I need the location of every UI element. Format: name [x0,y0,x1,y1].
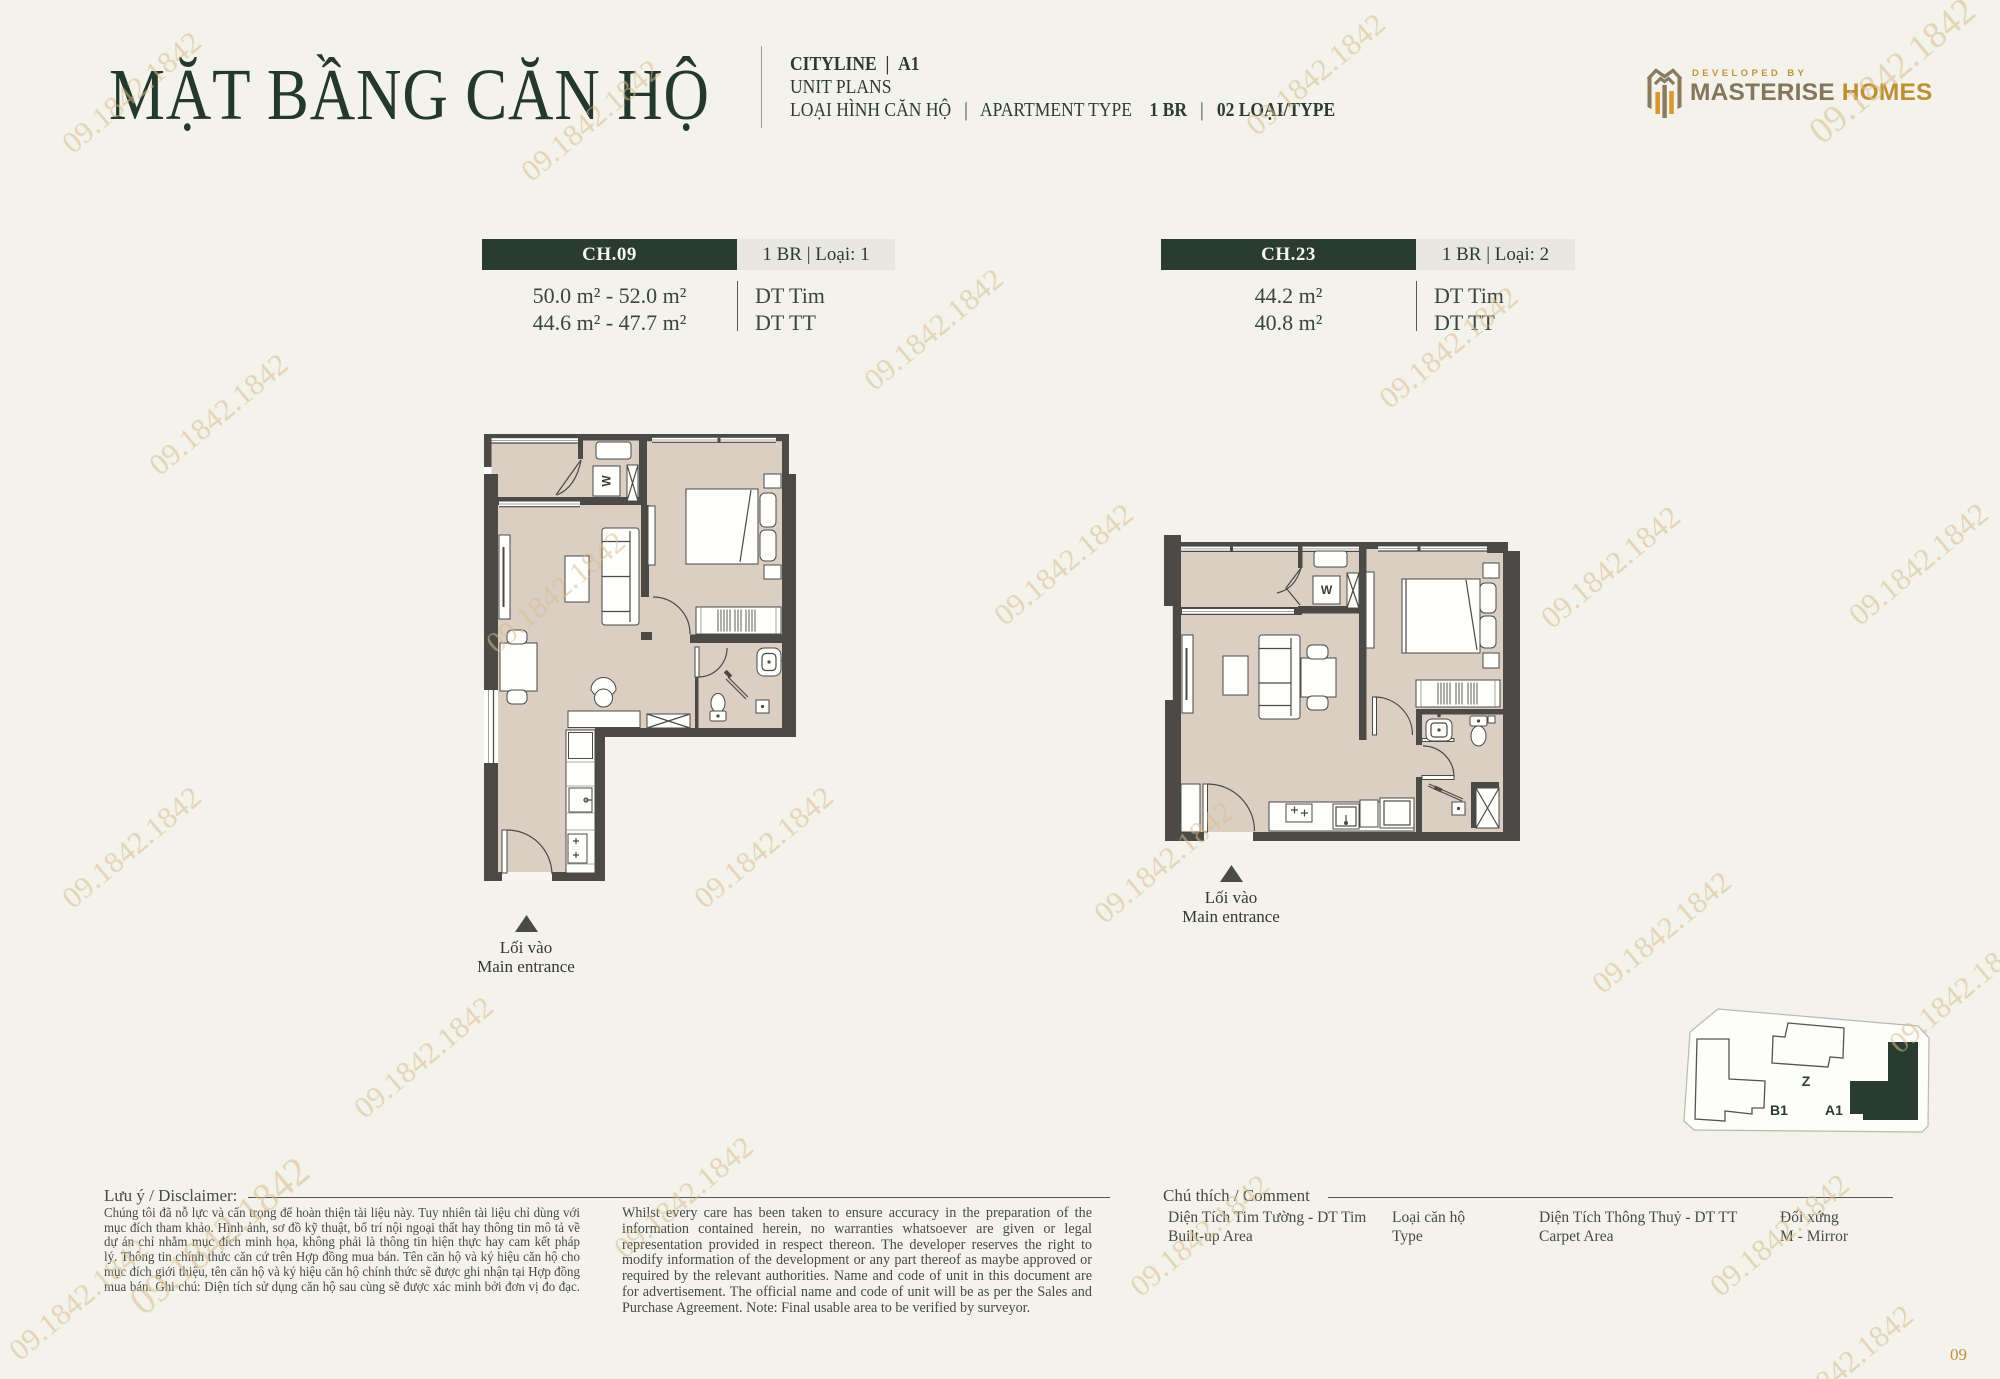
svg-text:09.1842.1842: 09.1842.1842 [1123,1167,1276,1303]
svg-text:09.1842.1842: 09.1842.1842 [1087,794,1240,930]
svg-text:09.1842.1842: 09.1842.1842 [1239,6,1392,142]
svg-text:09.1842.1842: 09.1842.1842 [857,261,1010,397]
svg-text:09.1842.1842: 09.1842.1842 [1703,1167,1856,1303]
svg-text:09.1842.1842: 09.1842.1842 [1882,924,2000,1060]
svg-text:09.1842.1842: 09.1842.1842 [142,346,295,482]
svg-text:09.1842.1842: 09.1842.1842 [55,779,208,915]
svg-text:09.1842.1842: 09.1842.1842 [607,1129,760,1265]
svg-text:09.1842.1842: 09.1842.1842 [55,24,208,160]
svg-text:09.1842.1842: 09.1842.1842 [514,52,667,188]
svg-text:09.1842.1842: 09.1842.1842 [1372,279,1525,415]
svg-text:09.1842.1842: 09.1842.1842 [1534,499,1687,635]
svg-text:09.1842.1842: 09.1842.1842 [347,989,500,1125]
svg-text:09.1842.1842: 09.1842.1842 [1842,496,1995,632]
svg-text:09.1842.1842: 09.1842.1842 [1767,1298,1920,1379]
svg-text:09.1842.1842: 09.1842.1842 [1801,0,1983,152]
svg-text:09.1842.1842: 09.1842.1842 [121,1148,318,1324]
svg-text:09.1842.1842: 09.1842.1842 [479,524,632,660]
svg-text:09.1842.1842: 09.1842.1842 [987,496,1140,632]
svg-text:09.1842.1842: 09.1842.1842 [687,779,840,915]
svg-text:09.1842.1842: 09.1842.1842 [1585,864,1738,1000]
